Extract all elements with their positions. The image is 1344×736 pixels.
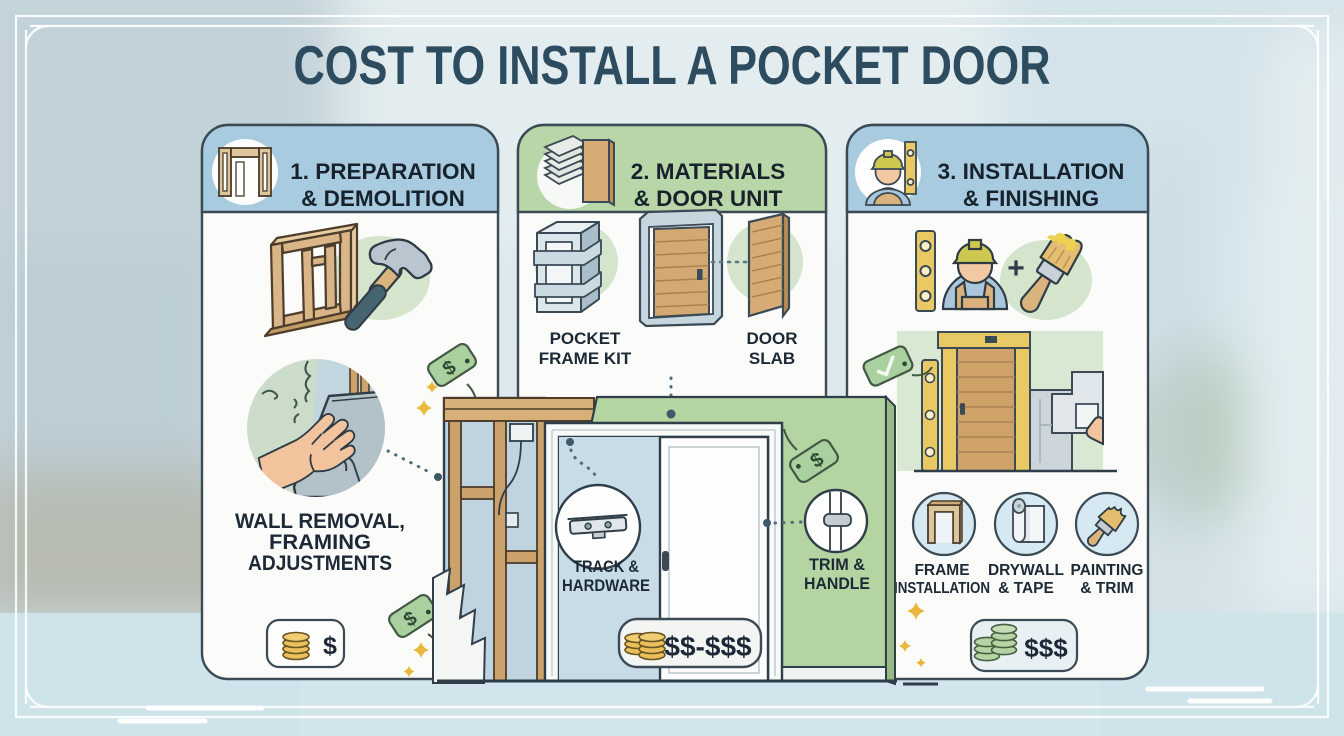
svg-text:$: $	[323, 632, 337, 660]
svg-text:& FINISHING: & FINISHING	[963, 186, 1099, 211]
svg-text:WALL REMOVAL,: WALL REMOVAL,	[235, 510, 405, 533]
svg-text:$$$: $$$	[1024, 633, 1068, 663]
svg-text:3. INSTALLATION: 3. INSTALLATION	[938, 159, 1125, 184]
svg-text:COST TO INSTALL A POCKET DOOR: COST TO INSTALL A POCKET DOOR	[294, 34, 1051, 96]
svg-text:DOOR: DOOR	[747, 329, 798, 348]
svg-text:+: +	[1007, 252, 1025, 285]
svg-text:& TAPE: & TAPE	[998, 580, 1054, 597]
svg-text:& DOOR UNIT: & DOOR UNIT	[634, 186, 783, 211]
svg-text:HANDLE: HANDLE	[804, 575, 870, 593]
svg-text:PAINTING: PAINTING	[1071, 562, 1144, 579]
svg-text:2. MATERIALS: 2. MATERIALS	[631, 159, 786, 184]
svg-text:FRAME: FRAME	[914, 562, 969, 579]
svg-text:INSTALLATION: INSTALLATION	[894, 580, 990, 597]
svg-text:FRAME KIT: FRAME KIT	[539, 349, 632, 368]
svg-text:& TRIM: & TRIM	[1080, 580, 1133, 597]
svg-text:TRACK &: TRACK &	[573, 558, 639, 576]
svg-text:$$-$$$: $$-$$$	[664, 631, 752, 662]
svg-text:DRYWALL: DRYWALL	[988, 562, 1064, 579]
svg-text:SLAB: SLAB	[749, 349, 795, 368]
svg-text:POCKET: POCKET	[550, 329, 621, 348]
svg-text:ADJUSTMENTS: ADJUSTMENTS	[248, 552, 392, 575]
svg-text:& DEMOLITION: & DEMOLITION	[301, 186, 465, 211]
svg-text:FRAMING: FRAMING	[269, 531, 371, 554]
svg-text:1. PREPARATION: 1. PREPARATION	[290, 159, 475, 184]
svg-text:TRIM &: TRIM &	[809, 556, 865, 574]
svg-text:HARDWARE: HARDWARE	[562, 577, 650, 595]
